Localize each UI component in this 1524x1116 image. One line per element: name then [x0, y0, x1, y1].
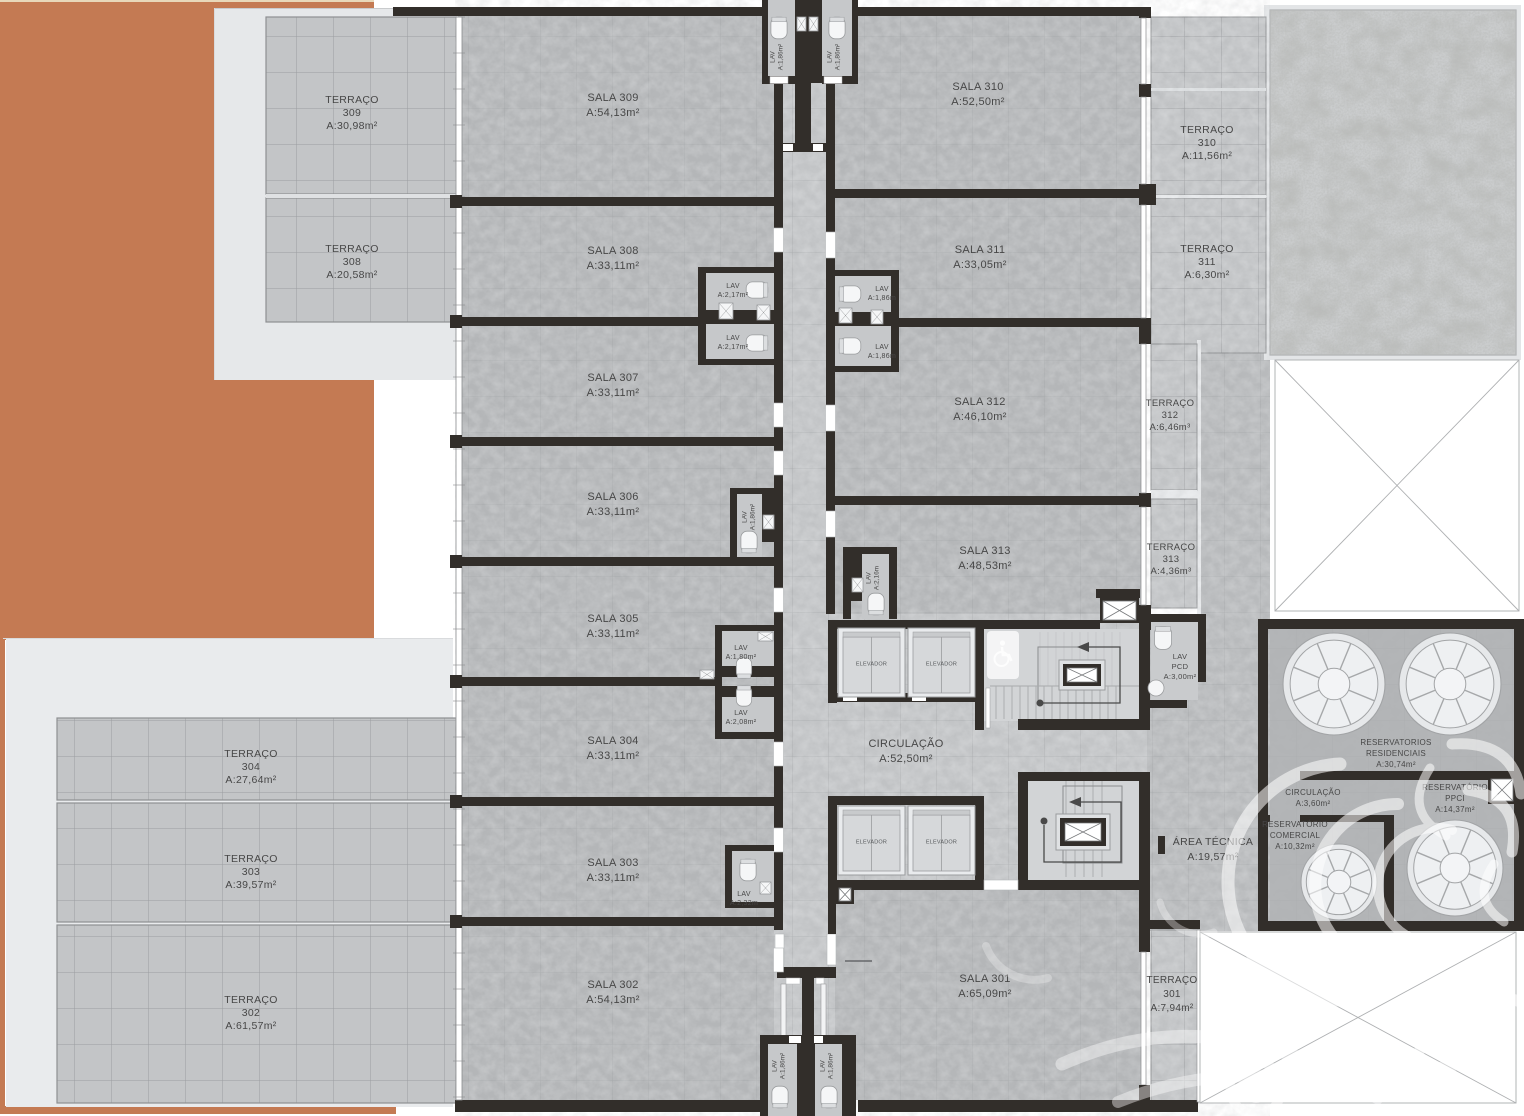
svg-text:TERRAÇO: TERRAÇO — [325, 243, 378, 255]
svg-text:A:2,32m: A:2,32m — [730, 900, 758, 907]
svg-text:SALA 310: SALA 310 — [952, 81, 1003, 93]
svg-text:A:1,80m²: A:1,80m² — [726, 654, 757, 661]
svg-text:TERRAÇO: TERRAÇO — [1147, 975, 1198, 986]
svg-text:LAV: LAV — [1173, 652, 1188, 661]
svg-text:TERRAÇO: TERRAÇO — [224, 748, 277, 760]
svg-text:SALA 304: SALA 304 — [587, 735, 638, 747]
svg-text:310: 310 — [1198, 137, 1216, 149]
svg-text:A:1,86m²: A:1,86m² — [749, 503, 756, 530]
svg-text:SALA 305: SALA 305 — [587, 613, 638, 625]
svg-text:A:6,30m²: A:6,30m² — [1185, 269, 1230, 281]
svg-text:SALA 303: SALA 303 — [587, 857, 638, 869]
svg-text:LAV: LAV — [875, 286, 889, 293]
svg-text:CIRCULAÇÃO: CIRCULAÇÃO — [1285, 788, 1340, 797]
svg-text:A:52,50m²: A:52,50m² — [951, 96, 1004, 108]
svg-text:A:52,50m²: A:52,50m² — [879, 753, 932, 765]
svg-text:TERRAÇO: TERRAÇO — [1180, 124, 1233, 136]
svg-text:A:6,46m³: A:6,46m³ — [1150, 422, 1191, 433]
svg-text:301: 301 — [1163, 989, 1181, 1000]
svg-text:A:2,16m: A:2,16m — [873, 566, 880, 590]
svg-text:PPCI: PPCI — [1445, 794, 1465, 803]
svg-text:A:39,57m²: A:39,57m² — [225, 879, 276, 891]
svg-text:COMERCIAL: COMERCIAL — [1270, 831, 1321, 840]
svg-text:304: 304 — [242, 761, 260, 773]
svg-text:A:1,86m: A:1,86m — [868, 295, 896, 302]
svg-text:TERRAÇO: TERRAÇO — [224, 994, 277, 1006]
svg-text:ELEVADOR: ELEVADOR — [856, 662, 887, 668]
svg-text:SALA 308: SALA 308 — [587, 245, 638, 257]
svg-text:A:1,86m²: A:1,86m² — [827, 1052, 834, 1079]
svg-text:RESERVATÓRIO: RESERVATÓRIO — [1262, 820, 1328, 829]
svg-text:SALA 311: SALA 311 — [955, 244, 1006, 256]
svg-text:TERRAÇO: TERRAÇO — [1147, 542, 1196, 553]
svg-text:SALA 313: SALA 313 — [959, 545, 1010, 557]
svg-text:A:33,11m²: A:33,11m² — [587, 387, 640, 399]
svg-text:RESERVATORIOS: RESERVATORIOS — [1360, 738, 1431, 747]
svg-text:A:33,11m²: A:33,11m² — [587, 506, 640, 518]
svg-text:A:27,64m²: A:27,64m² — [225, 774, 276, 786]
svg-text:A:1,86m: A:1,86m — [868, 353, 896, 360]
svg-text:LAV: LAV — [734, 645, 748, 652]
svg-text:RESIDENCIAIS: RESIDENCIAIS — [1366, 749, 1426, 758]
svg-text:TERRAÇO: TERRAÇO — [325, 94, 378, 106]
svg-text:A:1,86m²: A:1,86m² — [777, 43, 784, 70]
svg-text:LAV: LAV — [865, 571, 872, 583]
svg-text:SALA 301: SALA 301 — [959, 973, 1010, 985]
svg-text:LAV: LAV — [771, 1059, 778, 1071]
svg-text:LAV: LAV — [726, 335, 740, 342]
svg-text:302: 302 — [242, 1007, 260, 1019]
svg-text:A:54,13m²: A:54,13m² — [586, 107, 639, 119]
svg-text:A:20,58m²: A:20,58m² — [326, 269, 377, 281]
svg-text:A:10,32m²: A:10,32m² — [1275, 842, 1315, 851]
svg-text:A:48,53m²: A:48,53m² — [958, 560, 1011, 572]
svg-text:LAV: LAV — [826, 50, 833, 62]
svg-text:A:33,11m²: A:33,11m² — [587, 628, 640, 640]
svg-text:ELEVADOR: ELEVADOR — [856, 840, 887, 846]
svg-text:313: 313 — [1163, 554, 1180, 565]
svg-text:A:11,56m²: A:11,56m² — [1182, 150, 1233, 162]
svg-text:A:3,60m²: A:3,60m² — [1296, 799, 1331, 808]
svg-text:A:4,36m³: A:4,36m³ — [1151, 566, 1192, 577]
svg-text:A:33,11m²: A:33,11m² — [587, 750, 640, 762]
svg-text:309: 309 — [343, 107, 361, 119]
svg-text:A:33,05m²: A:33,05m² — [953, 259, 1006, 271]
svg-text:A:2,08m²: A:2,08m² — [726, 719, 757, 726]
svg-text:A:2,17m²: A:2,17m² — [718, 344, 749, 351]
svg-text:PCD: PCD — [1172, 662, 1189, 671]
svg-text:LAV: LAV — [734, 710, 748, 717]
svg-text:ELEVADOR: ELEVADOR — [926, 840, 957, 846]
svg-text:A:1,86m²: A:1,86m² — [834, 43, 841, 70]
svg-text:SALA 309: SALA 309 — [587, 92, 638, 104]
svg-text:A:14,37m²: A:14,37m² — [1435, 805, 1475, 814]
svg-text:A:1,86m²: A:1,86m² — [779, 1052, 786, 1079]
svg-text:A:30,98m²: A:30,98m² — [326, 120, 377, 132]
svg-text:A:65,09m²: A:65,09m² — [958, 988, 1011, 1000]
svg-text:A:54,13m²: A:54,13m² — [586, 994, 639, 1006]
svg-text:311: 311 — [1198, 256, 1216, 268]
svg-text:CIRCULAÇÃO: CIRCULAÇÃO — [868, 737, 943, 750]
svg-text:LAV: LAV — [726, 283, 740, 290]
svg-text:A:7,94m²: A:7,94m² — [1151, 1003, 1194, 1014]
svg-text:A:33,11m²: A:33,11m² — [587, 872, 640, 884]
svg-text:SALA 307: SALA 307 — [587, 372, 638, 384]
svg-text:LAV: LAV — [737, 891, 751, 898]
svg-text:A:3,00m²: A:3,00m² — [1164, 672, 1197, 681]
svg-text:303: 303 — [242, 866, 260, 878]
svg-text:A:30,74m²: A:30,74m² — [1376, 760, 1416, 769]
svg-text:SALA 302: SALA 302 — [587, 979, 638, 991]
svg-text:TERRAÇO: TERRAÇO — [224, 853, 277, 865]
svg-text:LAV: LAV — [875, 344, 889, 351]
svg-text:LAV: LAV — [769, 50, 776, 62]
svg-text:SALA 306: SALA 306 — [587, 491, 638, 503]
svg-text:308: 308 — [343, 256, 361, 268]
svg-text:TERRAÇO: TERRAÇO — [1180, 243, 1233, 255]
svg-text:ELEVADOR: ELEVADOR — [926, 662, 957, 668]
svg-text:SALA 312: SALA 312 — [954, 396, 1005, 408]
svg-text:LAV: LAV — [819, 1059, 826, 1071]
svg-text:LAV: LAV — [741, 510, 748, 522]
svg-text:A:33,11m²: A:33,11m² — [587, 260, 640, 272]
svg-text:TERRAÇO: TERRAÇO — [1146, 398, 1195, 409]
svg-text:A:2,17m²: A:2,17m² — [718, 292, 749, 299]
svg-text:A:46,10m²: A:46,10m² — [953, 411, 1006, 423]
svg-text:A:61,57m²: A:61,57m² — [225, 1020, 276, 1032]
svg-text:312: 312 — [1162, 410, 1179, 421]
